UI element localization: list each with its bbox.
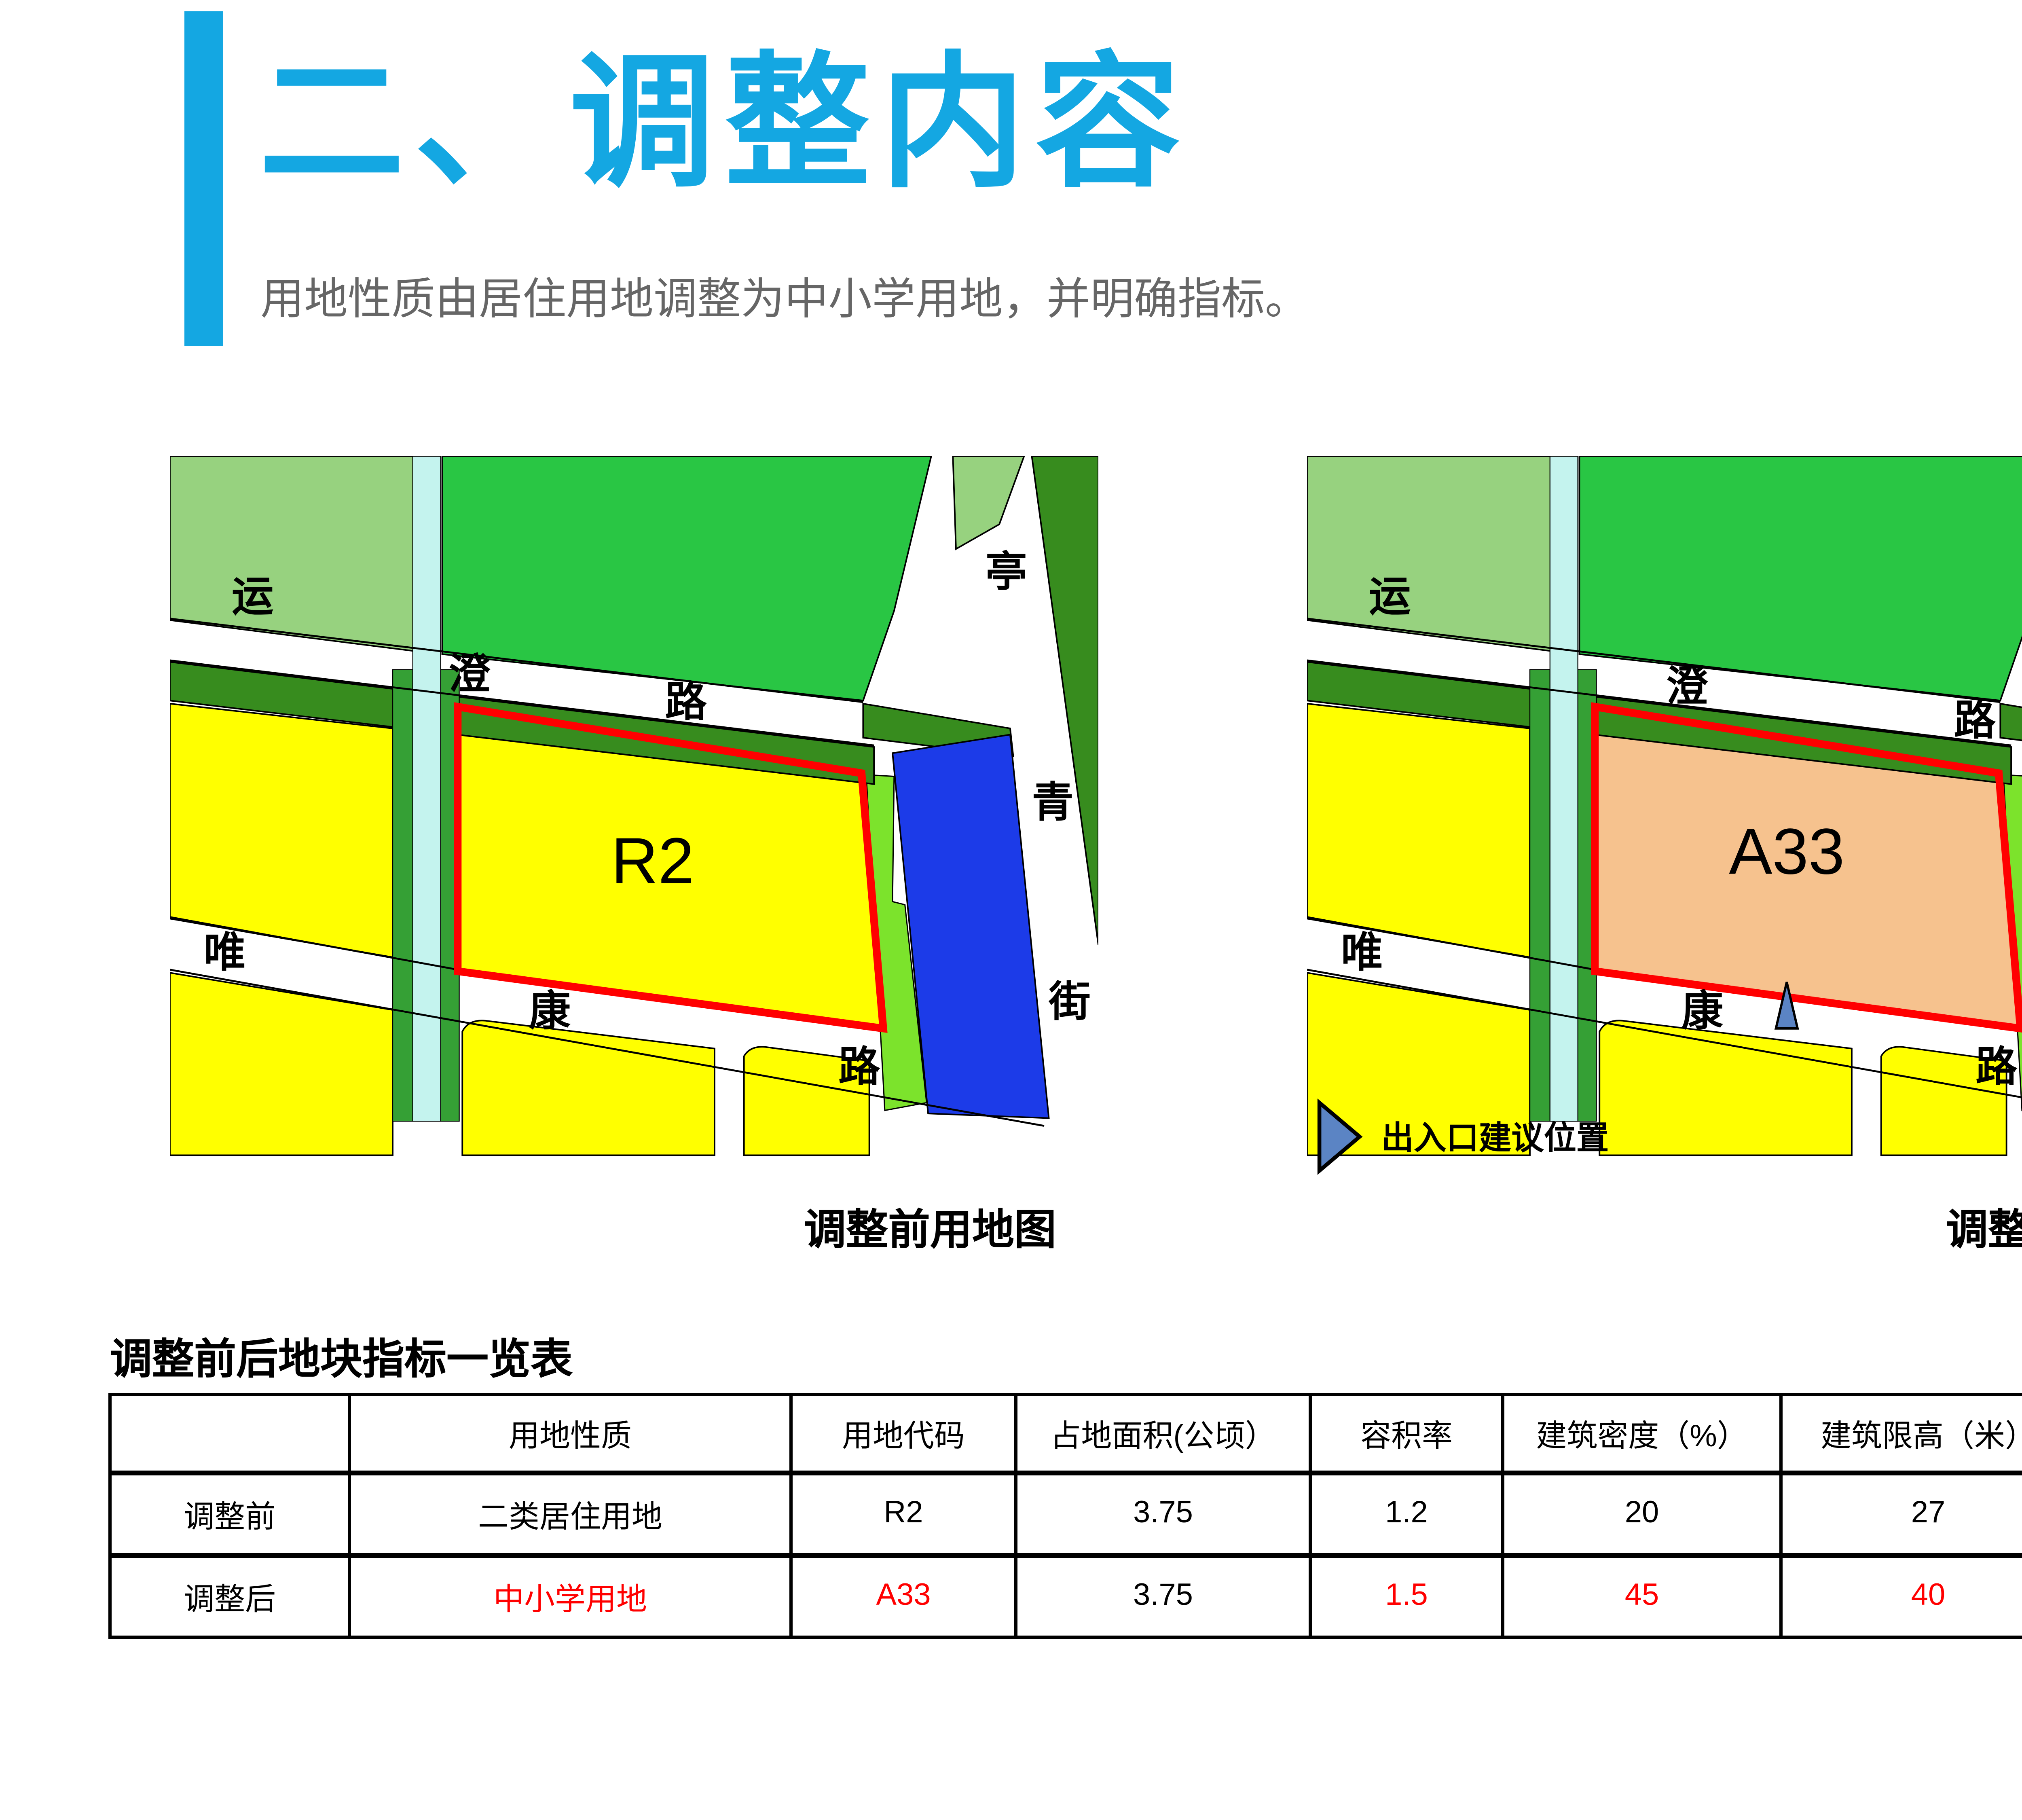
road-label: 唯 — [204, 929, 245, 976]
canal-green-west — [1530, 670, 1550, 1122]
page-title: 二、调整内容 — [259, 45, 1191, 205]
slide: 二、调整内容 用地性质由居住用地调整为中小学用地，并明确指标。 — [0, 0, 2022, 1820]
cell-land-use: 二类居住用地 — [349, 1473, 791, 1555]
cell-far: 1.2 — [1310, 1473, 1503, 1555]
road-label: 澄 — [1666, 663, 1709, 709]
cell-land-code: R2 — [791, 1473, 1016, 1555]
header-land-code: 用地代码 — [791, 1395, 1016, 1473]
road-label: 路 — [1975, 1043, 2018, 1090]
table-row-before: 调整前 二类居住用地 R2 3.75 1.2 20 27 40 — [110, 1473, 2022, 1555]
residential-block-west — [170, 704, 393, 957]
road-label: 唯 — [1341, 929, 1383, 976]
road-label: 澄 — [448, 651, 491, 697]
land-use-map-after: A33 运 澄 路 唯 康 路 亭 青 街 出入口建议位置 — [1307, 456, 2022, 1194]
map-after-canvas: A33 运 澄 路 唯 康 路 亭 青 街 出入口建议位置 — [1307, 456, 2022, 1194]
road-label: 路 — [838, 1043, 880, 1090]
row-label: 调整后 — [110, 1555, 349, 1637]
cell-land-code: A33 — [791, 1555, 1016, 1637]
canal-water — [1550, 456, 1578, 1121]
header-empty — [110, 1395, 349, 1473]
map-caption-after: 调整后用地图 — [1946, 1197, 2022, 1257]
table-header-row: 用地性质 用地代码 占地面积(公顷） 容积率 建筑密度（%） 建筑限高（米） 绿… — [110, 1395, 2022, 1473]
road-label: 康 — [1681, 988, 1724, 1034]
road-label: 路 — [665, 678, 707, 725]
table-row-after: 调整后 中小学用地 A33 3.75 1.5 45 40 20 — [110, 1555, 2022, 1637]
page-subtitle: 用地性质由居住用地调整为中小学用地，并明确指标。 — [260, 264, 1309, 327]
cell-area: 3.75 — [1016, 1555, 1310, 1637]
legend-entrance-label: 出入口建议位置 — [1381, 1120, 1609, 1156]
indicator-table: 用地性质 用地代码 占地面积(公顷） 容积率 建筑密度（%） 建筑限高（米） 绿… — [108, 1393, 2022, 1639]
road-label: 路 — [1954, 697, 1996, 743]
road-label: 运 — [232, 573, 273, 620]
cell-density: 20 — [1503, 1473, 1781, 1555]
map-caption-before: 调整前用地图 — [804, 1197, 1056, 1257]
header-density: 建筑密度（%） — [1503, 1395, 1781, 1473]
canal-water — [413, 456, 441, 1121]
header-area: 占地面积(公顷） — [1016, 1395, 1310, 1473]
land-use-map-before: R2 运 澄 路 唯 康 路 亭 青 街 — [170, 456, 1098, 1194]
road-label: 街 — [1049, 978, 1091, 1025]
parcel-code-label: A33 — [1729, 816, 1844, 888]
table-title: 调整前后地块指标一览表 — [110, 1327, 573, 1386]
green-space-light — [1307, 456, 1552, 651]
map-before-canvas: R2 运 澄 路 唯 康 路 亭 青 街 — [170, 456, 1098, 1194]
green-space-light — [170, 456, 415, 651]
header-land-use: 用地性质 — [349, 1395, 791, 1473]
cell-land-use: 中小学用地 — [349, 1555, 791, 1637]
cell-far: 1.5 — [1310, 1555, 1503, 1637]
road-label: 运 — [1369, 573, 1411, 620]
title-accent-bar — [184, 11, 223, 346]
road-label: 康 — [529, 988, 571, 1034]
road-label: 亭 — [986, 548, 1027, 595]
cell-area: 3.75 — [1016, 1473, 1310, 1555]
road-label: 青 — [1032, 779, 1073, 825]
cell-height-limit: 40 — [1781, 1555, 2022, 1637]
parcel-code-label: R2 — [611, 825, 694, 897]
header-far: 容积率 — [1310, 1395, 1503, 1473]
canal-green-west — [393, 670, 413, 1122]
header-height-limit: 建筑限高（米） — [1781, 1395, 2022, 1473]
cell-density: 45 — [1503, 1555, 1781, 1637]
residential-block-west — [1307, 704, 1530, 957]
cell-height-limit: 27 — [1781, 1473, 2022, 1555]
row-label: 调整前 — [110, 1473, 349, 1555]
